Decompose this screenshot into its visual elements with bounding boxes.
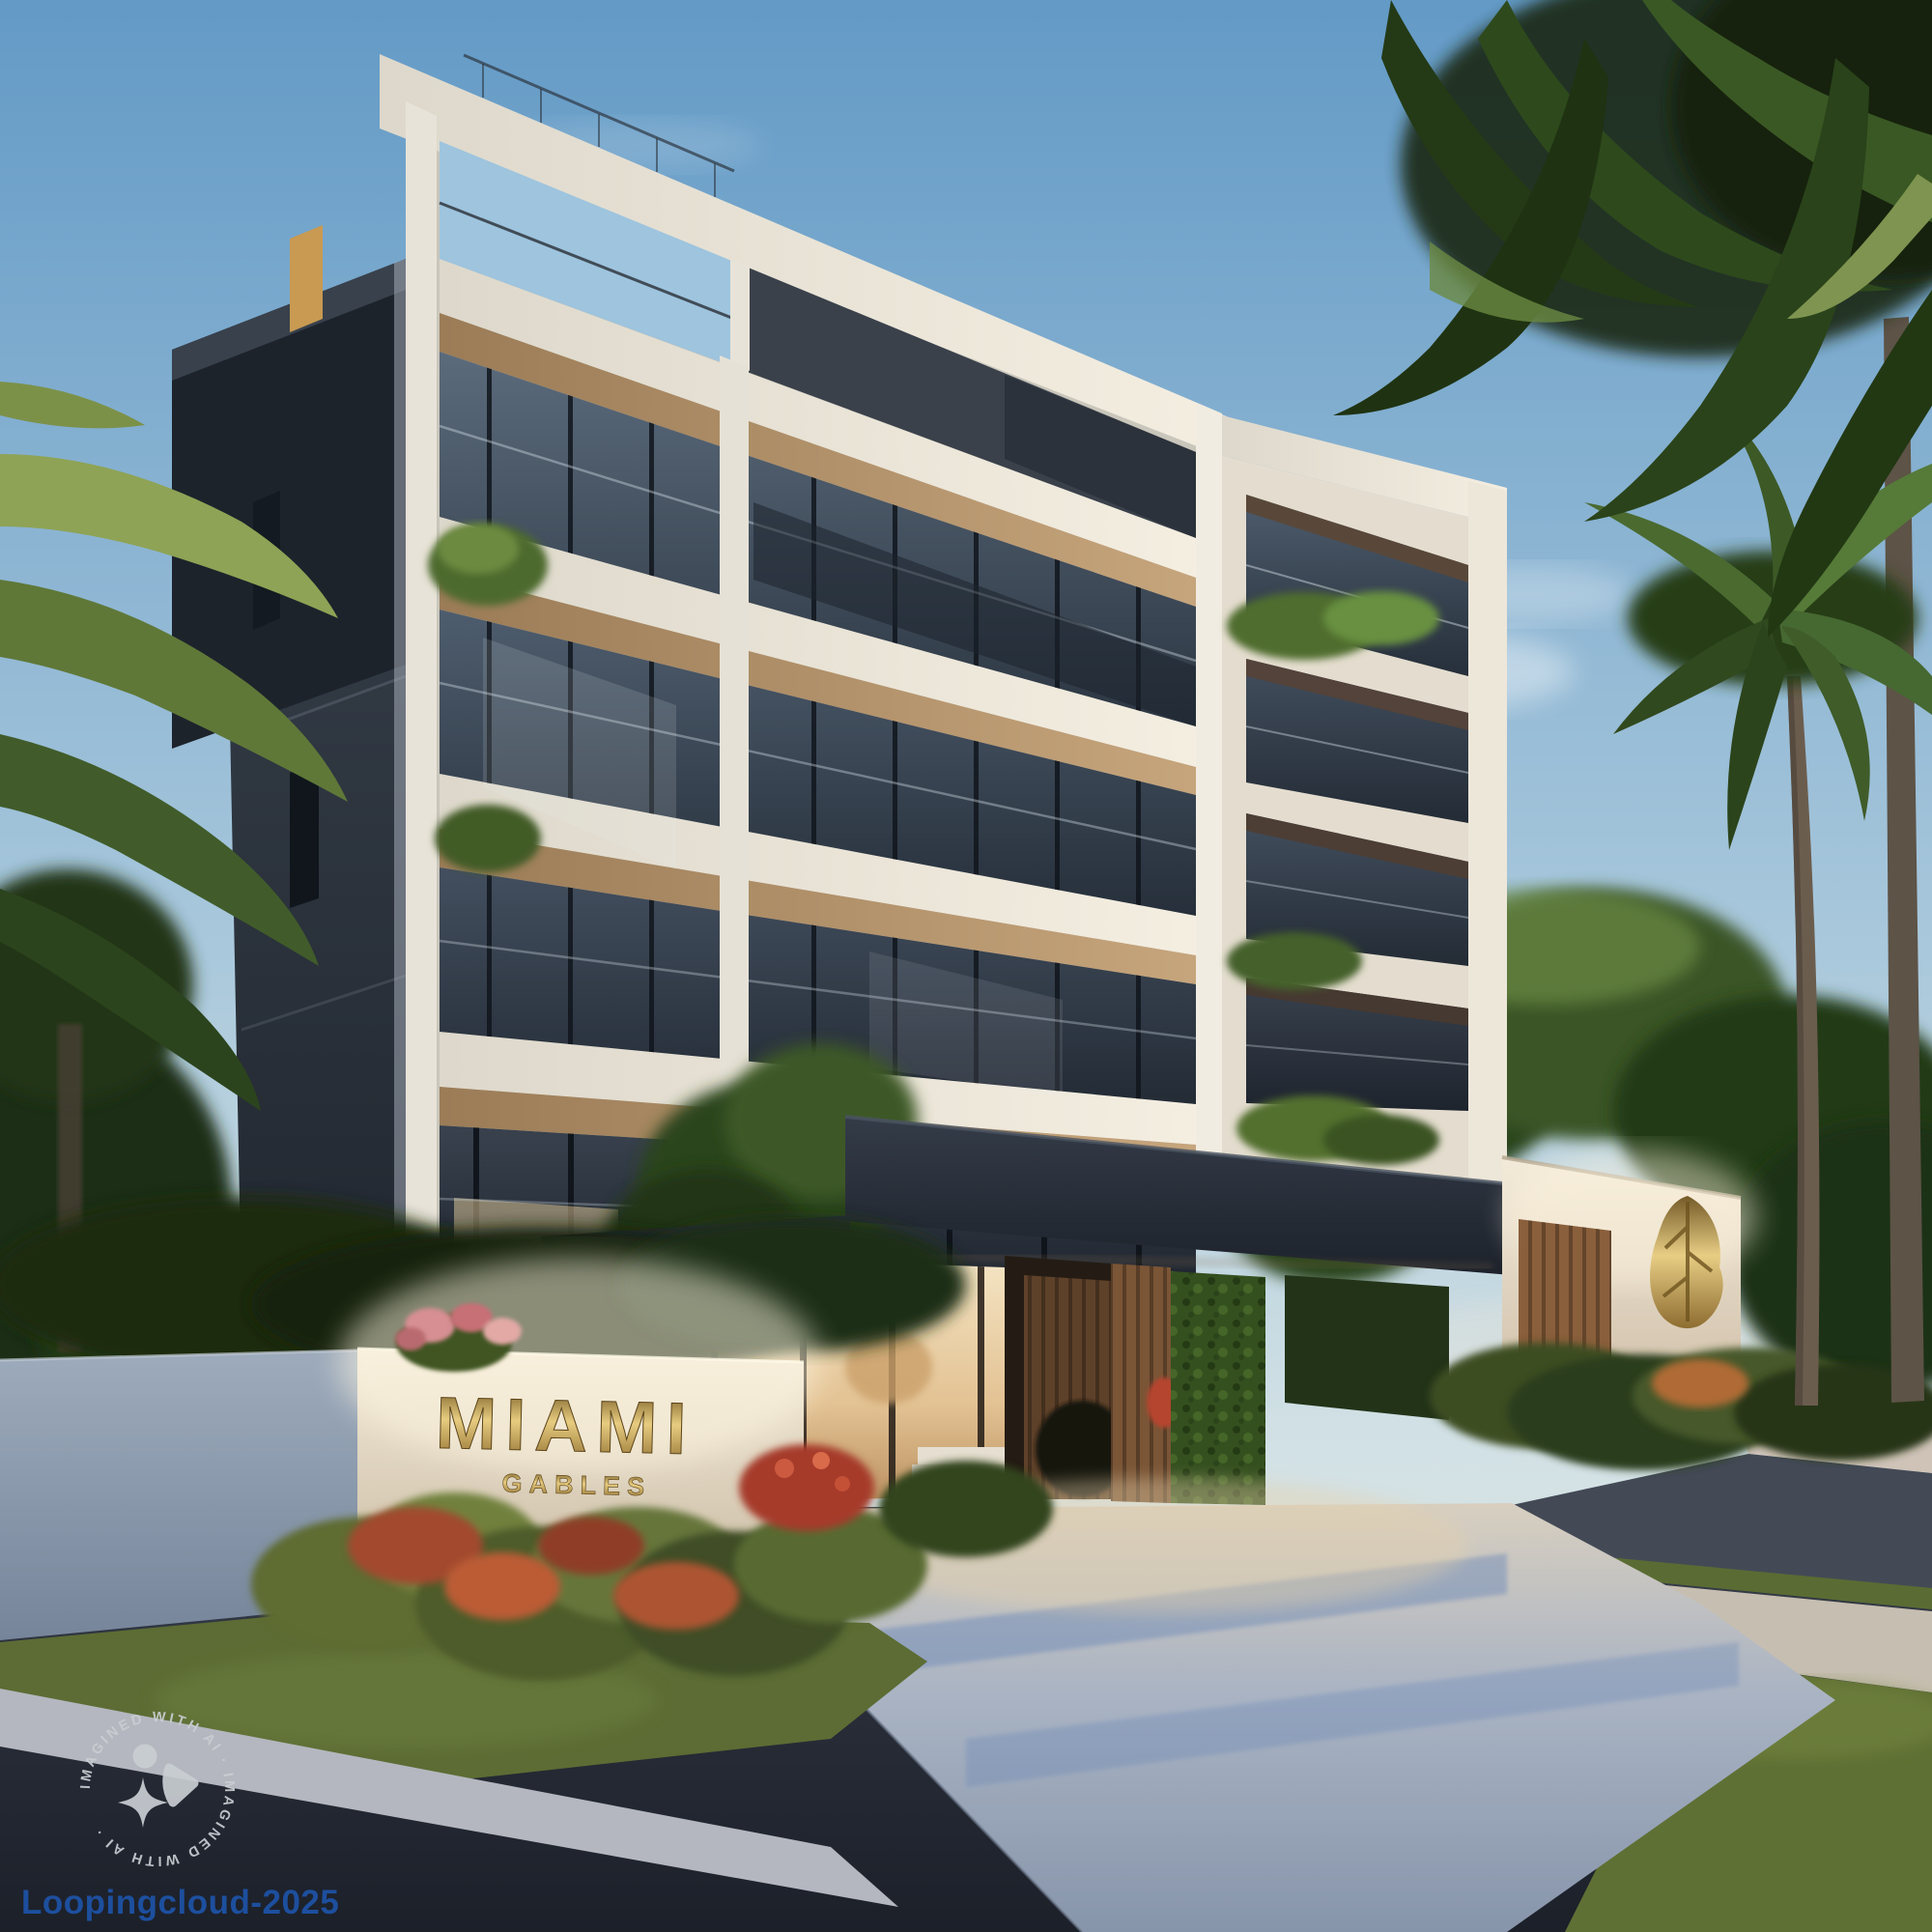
dot-icon — [133, 1745, 157, 1769]
building-right-wing — [1222, 415, 1507, 1225]
red-flower-bush — [739, 1444, 874, 1531]
shaded-vine-wall — [1285, 1275, 1449, 1420]
sign-line2: GABLES — [501, 1468, 651, 1501]
green-wall — [1171, 1271, 1265, 1505]
right-wing-pier — [1468, 481, 1507, 1225]
sign-line1: MIAMI — [435, 1382, 696, 1471]
facade-left-pier — [406, 101, 437, 1256]
credit-watermark: Loopingcloud-2025 — [21, 1884, 339, 1921]
lit-window — [290, 225, 323, 332]
scene: MIAMI GABLES — [0, 0, 1932, 1932]
rendering-canvas: MIAMI GABLES — [0, 0, 1932, 1932]
